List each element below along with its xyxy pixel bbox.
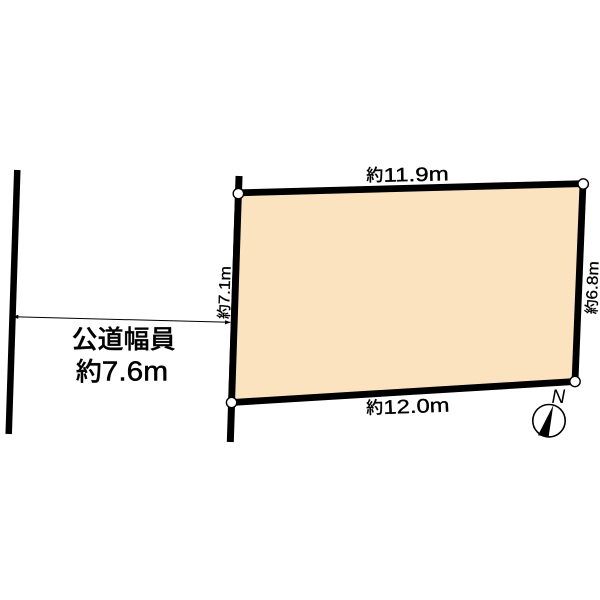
svg-text:12.0m: 12.0m [383,395,450,420]
svg-text:6.8m: 6.8m [584,261,600,300]
svg-text:7.1m: 7.1m [216,266,234,305]
svg-text:11.9m: 11.9m [383,163,449,186]
svg-text:7.6m: 7.6m [102,356,168,387]
